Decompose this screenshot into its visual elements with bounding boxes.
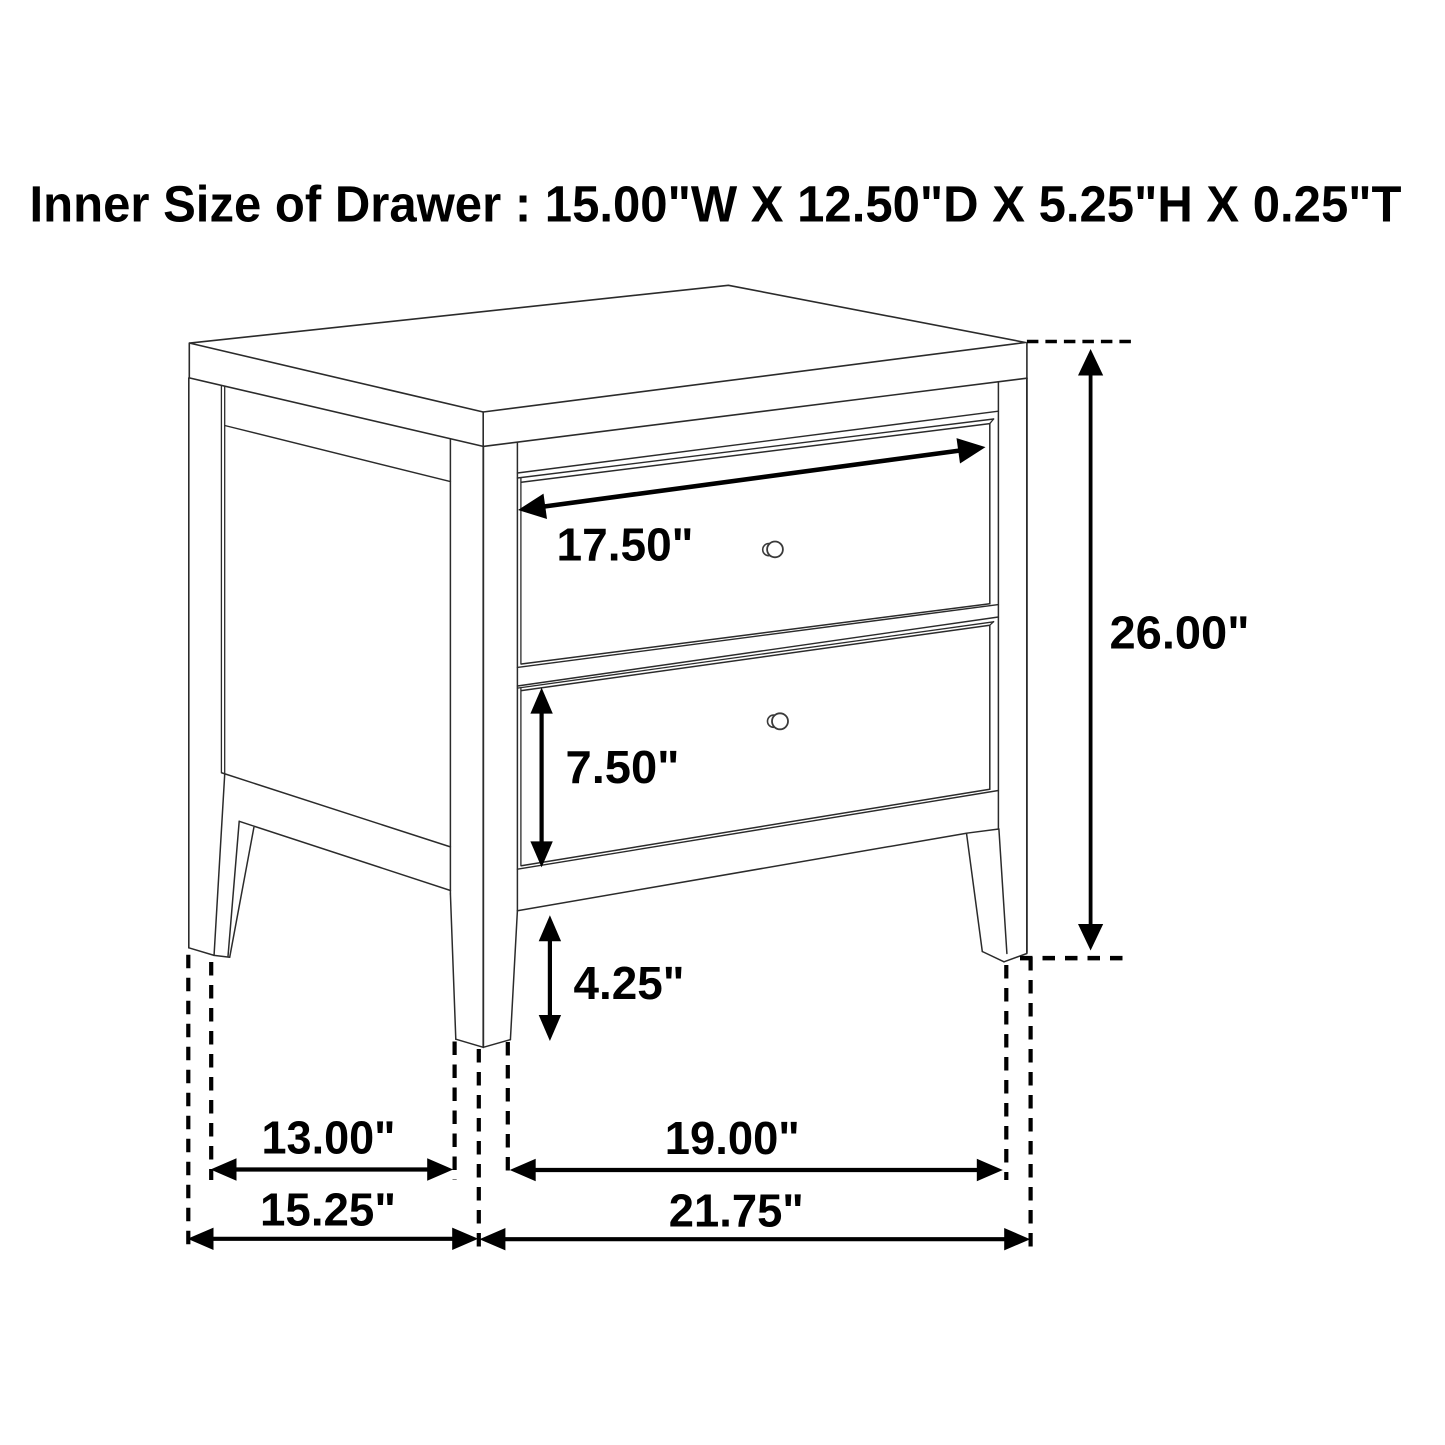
svg-text:19.00": 19.00" [665, 1112, 800, 1164]
svg-text:21.75": 21.75" [669, 1185, 804, 1237]
svg-text:15.25": 15.25" [260, 1184, 396, 1236]
svg-text:4.25": 4.25" [574, 957, 685, 1009]
svg-text:13.00": 13.00" [262, 1111, 396, 1163]
svg-text:7.50": 7.50" [566, 741, 680, 793]
svg-text:26.00": 26.00" [1110, 607, 1250, 659]
svg-text:Inner Size of Drawer : 15.00"W: Inner Size of Drawer : 15.00"W X 12.50"D… [30, 176, 1402, 233]
svg-text:17.50": 17.50" [557, 519, 694, 571]
